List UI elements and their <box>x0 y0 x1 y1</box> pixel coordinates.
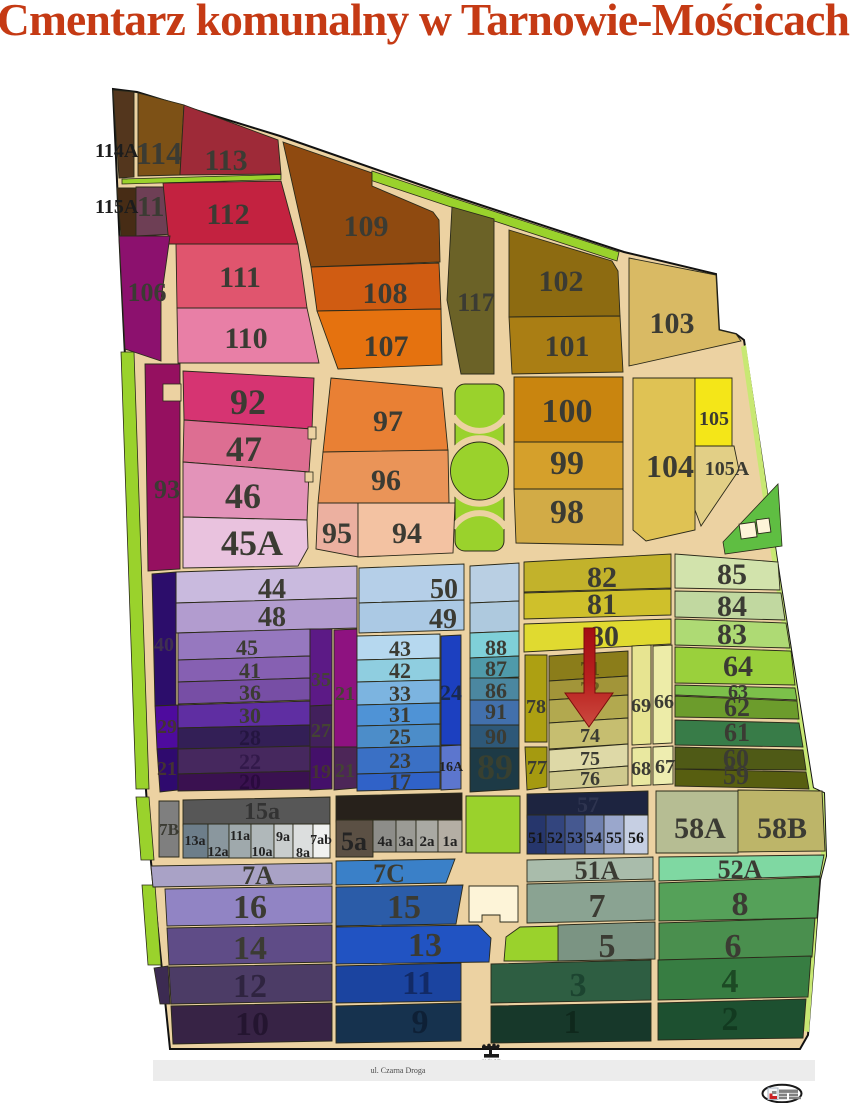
svg-text:1a: 1a <box>443 834 459 850</box>
svg-text:51A: 51A <box>575 856 620 885</box>
svg-text:91: 91 <box>485 699 507 724</box>
svg-text:16A: 16A <box>439 760 464 775</box>
svg-text:4: 4 <box>722 963 739 1000</box>
svg-text:66: 66 <box>654 691 674 713</box>
svg-text:35: 35 <box>311 669 331 691</box>
svg-text:77: 77 <box>527 757 547 779</box>
svg-text:49: 49 <box>429 604 457 635</box>
svg-text:53: 53 <box>567 830 583 847</box>
svg-text:92: 92 <box>230 382 266 422</box>
svg-text:10a: 10a <box>252 845 273 860</box>
svg-text:16: 16 <box>233 889 267 926</box>
svg-text:5: 5 <box>599 928 616 965</box>
svg-text:99: 99 <box>550 445 584 482</box>
svg-text:109: 109 <box>344 210 389 243</box>
svg-text:21: 21 <box>335 760 355 782</box>
svg-text:68: 68 <box>631 758 651 780</box>
svg-text:9a: 9a <box>276 830 290 845</box>
svg-text:81: 81 <box>587 588 617 621</box>
svg-text:83: 83 <box>717 618 747 651</box>
svg-text:102: 102 <box>539 265 584 298</box>
svg-text:40: 40 <box>154 634 174 656</box>
svg-text:69: 69 <box>631 695 651 717</box>
svg-text:Cmentarz komunalny w Tarnowie-: Cmentarz komunalny w Tarnowie-Mościcach <box>0 0 850 45</box>
svg-text:78: 78 <box>526 696 546 718</box>
svg-text:104: 104 <box>646 448 694 484</box>
svg-text:58A: 58A <box>674 812 726 845</box>
svg-text:58B: 58B <box>757 812 807 845</box>
svg-text:14: 14 <box>233 930 267 967</box>
svg-text:25: 25 <box>389 724 411 749</box>
svg-text:20: 20 <box>239 769 261 794</box>
svg-text:9: 9 <box>412 1004 429 1041</box>
svg-text:97: 97 <box>373 405 403 438</box>
svg-text:46: 46 <box>225 476 261 516</box>
svg-text:7ab: 7ab <box>310 833 332 848</box>
svg-text:3: 3 <box>570 967 587 1004</box>
svg-text:57: 57 <box>577 792 599 817</box>
svg-text:94: 94 <box>392 517 422 550</box>
svg-text:8a: 8a <box>296 846 310 861</box>
svg-text:51: 51 <box>528 830 544 847</box>
svg-text:95: 95 <box>322 517 352 550</box>
svg-text:56: 56 <box>628 830 644 847</box>
svg-text:45: 45 <box>236 635 258 660</box>
svg-text:15: 15 <box>387 889 421 926</box>
svg-text:67: 67 <box>655 756 675 778</box>
svg-text:110: 110 <box>224 322 267 355</box>
svg-text:101: 101 <box>545 330 590 363</box>
svg-text:114: 114 <box>136 135 182 171</box>
svg-text:21: 21 <box>157 758 177 780</box>
svg-text:93: 93 <box>154 475 180 504</box>
svg-text:55: 55 <box>606 830 622 847</box>
svg-text:15a: 15a <box>244 799 280 825</box>
svg-text:7: 7 <box>589 888 606 925</box>
svg-text:85: 85 <box>717 558 747 591</box>
svg-text:61: 61 <box>724 718 750 747</box>
svg-text:11: 11 <box>402 965 434 1002</box>
svg-text:98: 98 <box>550 494 584 531</box>
svg-text:10: 10 <box>235 1006 269 1043</box>
svg-text:45A: 45A <box>221 523 283 563</box>
svg-text:64: 64 <box>723 650 753 683</box>
svg-text:12: 12 <box>233 968 267 1005</box>
svg-text:36: 36 <box>239 680 261 705</box>
svg-text:29: 29 <box>157 716 177 738</box>
svg-text:13a: 13a <box>185 834 206 849</box>
svg-text:28: 28 <box>239 725 261 750</box>
svg-text:96: 96 <box>371 464 401 497</box>
svg-text:117: 117 <box>457 288 495 317</box>
svg-text:4a: 4a <box>378 834 394 850</box>
svg-text:7A: 7A <box>242 861 274 890</box>
svg-text:48: 48 <box>258 602 286 633</box>
svg-text:108: 108 <box>363 277 408 310</box>
svg-text:105A: 105A <box>705 458 750 480</box>
svg-text:21: 21 <box>335 683 355 705</box>
svg-text:103: 103 <box>650 307 695 340</box>
svg-text:7B: 7B <box>159 820 179 839</box>
svg-text:17: 17 <box>389 769 411 794</box>
svg-text:75: 75 <box>580 748 600 770</box>
svg-text:47: 47 <box>226 429 262 469</box>
svg-text:106: 106 <box>128 278 167 307</box>
svg-text:74: 74 <box>580 725 600 747</box>
svg-text:42: 42 <box>389 658 411 683</box>
svg-text:54: 54 <box>586 830 602 847</box>
svg-text:11a: 11a <box>230 829 250 844</box>
svg-text:59: 59 <box>723 761 749 790</box>
svg-text:3a: 3a <box>399 834 415 850</box>
svg-text:100: 100 <box>542 393 593 430</box>
svg-text:90: 90 <box>485 724 507 749</box>
svg-text:115A: 115A <box>95 196 139 218</box>
svg-text:113: 113 <box>204 144 247 177</box>
svg-text:8: 8 <box>732 886 749 923</box>
svg-text:2a: 2a <box>420 834 436 850</box>
svg-text:52: 52 <box>547 830 563 847</box>
svg-text:107: 107 <box>364 330 409 363</box>
svg-text:89: 89 <box>477 747 513 787</box>
svg-text:105: 105 <box>699 408 729 430</box>
svg-text:2: 2 <box>722 1001 739 1038</box>
svg-text:27: 27 <box>311 720 331 742</box>
svg-text:1: 1 <box>564 1004 581 1041</box>
svg-text:12a: 12a <box>208 845 229 860</box>
svg-text:7C: 7C <box>373 859 405 888</box>
svg-text:ul. Czarna Droga: ul. Czarna Droga <box>371 1066 426 1075</box>
svg-text:19: 19 <box>311 761 331 783</box>
svg-text:112: 112 <box>206 198 249 231</box>
svg-text:13: 13 <box>408 927 442 964</box>
svg-text:76: 76 <box>580 768 600 790</box>
svg-text:111: 111 <box>219 261 261 294</box>
svg-text:5a: 5a <box>341 827 367 856</box>
svg-text:114A: 114A <box>95 140 139 162</box>
svg-text:24: 24 <box>440 680 462 705</box>
